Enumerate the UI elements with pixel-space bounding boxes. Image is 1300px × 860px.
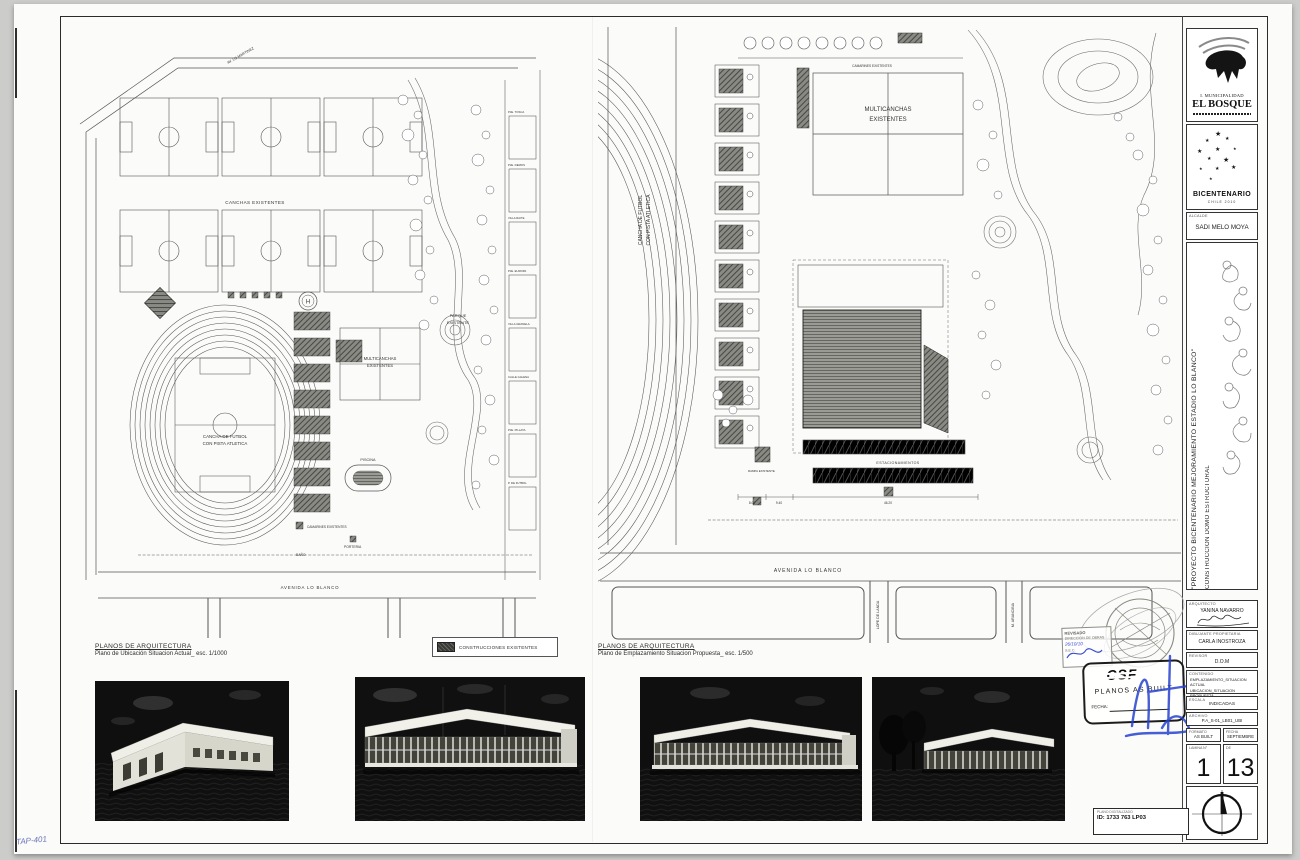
sheet-number: 1: [1187, 754, 1220, 783]
svg-text:PJE. PILLATA: PJE. PILLATA: [508, 428, 526, 432]
caption-sub: Plano de Emplazamiento Situacion Propues…: [598, 651, 753, 659]
multicourts-label: MULTICANCHAS: [865, 107, 912, 113]
multicourts-label: MULTICANCHAS: [364, 356, 397, 361]
cross-street-label: LOPE DE LANDA: [876, 600, 880, 629]
north-arrow-box: [1186, 786, 1258, 840]
municipality-name-line2: EL BOSQUE: [1187, 99, 1257, 110]
helipad: H: [299, 292, 317, 310]
star-icon: ★: [1223, 157, 1229, 164]
svg-text:PJE. TOSCA: PJE. TOSCA: [508, 110, 524, 114]
total-sheets-number: 13: [1224, 754, 1257, 783]
architect-signature: [1195, 611, 1251, 627]
blue-initial-scribble: [1064, 644, 1104, 666]
project-title-line1: "PROYECTO BICENTENARIO MEJORAMIENTO ESTA…: [1191, 267, 1198, 589]
field-lamina-number: LAMINA N° 1: [1186, 744, 1221, 784]
fecha-label: FECHA:: [1091, 704, 1108, 710]
site-plan-current: AV. LO MARTINEZ CANCHAS EXISTENTES CANCH…: [78, 40, 543, 640]
pool-label: PISCINA: [360, 458, 376, 462]
field-archivo: ARCHIVO P.A_S-01_LB01_UBI: [1186, 712, 1258, 726]
mayor-label: ALCALDE: [1189, 214, 1208, 218]
north-arrow-icon: [1190, 788, 1254, 838]
render-image-2: [355, 677, 585, 821]
housing-column: [715, 65, 759, 448]
svg-text:VILLA GRANELA: VILLA GRANELA: [508, 322, 530, 326]
paper-edge-mark: [15, 28, 17, 98]
dimension-line: [738, 494, 978, 500]
svg-text:9.40: 9.40: [776, 501, 782, 505]
svg-text:EXISTENTES: EXISTENTES: [869, 117, 906, 123]
star-icon: ★: [1209, 177, 1213, 181]
digitized-id-box: PLANO DIGITALIZADO ID: 1733 763 LP03: [1093, 808, 1189, 835]
star-icon: ★: [1205, 139, 1209, 144]
track-arcs: [598, 50, 698, 590]
ramp-block: [755, 447, 770, 462]
hatched-strip: [797, 68, 809, 128]
caption-title: PLANOS DE ARQUITECTURA: [95, 643, 227, 651]
svg-text:PJE. EUROPA: PJE. EUROPA: [508, 269, 526, 273]
field-arquitecto: ARQUITECTO YANINA NAVARRO: [1186, 600, 1258, 628]
figures-sketch: [1217, 251, 1257, 481]
logo-bar: [1193, 113, 1251, 115]
svg-text:EXISTENTES: EXISTENTES: [367, 363, 393, 368]
athletic-track: [130, 305, 320, 545]
canchas-label: CANCHAS EXISTENTES: [225, 200, 285, 205]
svg-text:46.20: 46.20: [884, 501, 892, 505]
star-icon: ★: [1199, 167, 1203, 171]
park-paths: [408, 78, 481, 510]
soccer-fields-grid: [120, 98, 422, 292]
cancha-label: CANCHA DE FUTBOL: [203, 434, 248, 439]
mayor-box: ALCALDE SADI MELO MOYA: [1186, 212, 1258, 240]
svg-text:VILLA RAITE: VILLA RAITE: [508, 216, 525, 220]
gate-label: PORTERIA: [344, 545, 362, 549]
svg-text:CANCHA DE FUTBOL: CANCHA DE FUTBOL: [638, 195, 644, 246]
svg-text:EXISTENTE: EXISTENTE: [447, 320, 470, 325]
svg-text:CON PISTA ATLETICA: CON PISTA ATLETICA: [203, 441, 248, 446]
render-image-4: [872, 677, 1065, 821]
id-label: PLANO DIGITALIZADO: [1097, 810, 1185, 814]
project-title-box: "PROYECTO BICENTENARIO MEJORAMIENTO ESTA…: [1186, 242, 1258, 590]
star-icon: ★: [1197, 149, 1202, 155]
municipality-name-line1: I. MUNICIPALIDAD: [1187, 93, 1257, 98]
field-dibujante: DIBUJANTE PROPIETARIA CARLA INOSTROZA: [1186, 630, 1258, 650]
star-icon: ★: [1207, 157, 1211, 162]
avenue-label: AVENIDA LO BLANCO: [774, 568, 842, 574]
render-image-3: [640, 677, 862, 821]
project-title-line2: CONSTRUCCION DOMO ESTRUCTURAL: [1205, 385, 1211, 589]
lockers-label: CAMARINES EXISTENTES: [852, 64, 892, 68]
star-icon: ★: [1231, 165, 1236, 171]
park-paths: [968, 30, 1156, 480]
svg-text:P. DE FUTBOL: P. DE FUTBOL: [508, 481, 527, 485]
id-value: ID: 1733 763 LP03: [1097, 815, 1185, 821]
legend-existing-constructions: CONSTRUCCIONES EXISTENTES: [432, 637, 558, 657]
caption-left: PLANOS DE ARQUITECTURA Plano de Ubicació…: [95, 643, 227, 659]
existing-buildings: [228, 292, 362, 512]
architectural-sheet: { "sheet": { "handwriting": "TAP-401" },…: [0, 0, 1300, 860]
field-revisor: REVISOR D.O.M: [1186, 652, 1258, 668]
locker-building: [296, 522, 303, 529]
municipality-logo-icon: [1191, 31, 1255, 93]
star-icon: ★: [1215, 147, 1220, 153]
site-plan-proposed: CANCHA DE FUTBOL CON PISTA ATLETICA CAMA…: [598, 25, 1183, 643]
south-edge: [98, 555, 536, 638]
paper-edge-mark: [15, 690, 17, 852]
svg-text:8.00: 8.00: [749, 501, 755, 505]
star-icon: ★: [1215, 131, 1221, 138]
svg-text:CALLE GALENA: CALLE GALENA: [508, 375, 529, 379]
west-street: [608, 27, 676, 545]
svg-text:CON PISTA ATLETICA: CON PISTA ATLETICA: [646, 194, 652, 246]
caption-title: PLANOS DE ARQUITECTURA: [598, 643, 753, 651]
bath-label: BAÑO: [296, 552, 306, 557]
cross-street-label: M. ARANCIBIA: [1011, 602, 1015, 627]
field-total-sheets: DE 13: [1223, 744, 1258, 784]
parking: [803, 440, 973, 496]
field-contenido: CONTENIDO EMPLAZAMIENTO_SITUACION ACTUAL…: [1186, 670, 1258, 694]
field-fecha: FECHA SEPTIEMBRE: [1223, 728, 1258, 742]
svg-text:H: H: [306, 300, 310, 306]
bicentenario-title: BICENTENARIO: [1187, 191, 1257, 198]
park-label: PARQUE: [450, 313, 467, 318]
star-icon: ★: [1215, 167, 1219, 172]
dome-building: [793, 260, 948, 453]
caption-right: PLANOS DE ARQUITECTURA Plano de Emplazam…: [598, 643, 753, 659]
municipality-logo-box: I. MUNICIPALIDAD EL BOSQUE: [1186, 28, 1258, 122]
bicentenario-box: ★ ★ ★ ★ ★ ★ ★ ★ ★ ★ ★ ★ BICENTENARIO CHI…: [1186, 124, 1258, 210]
mayor-name: SADI MELO MOYA: [1187, 224, 1257, 231]
field-formato: FORMATO AS BUILT: [1186, 728, 1221, 742]
passage-labels: PJE. TOSCA PJE. DEMOS VILLA RAITE PJE. E…: [508, 110, 530, 485]
street-label: AV. LO MARTINEZ: [227, 46, 256, 65]
avenue-label: AVENIDA LO BLANCO: [281, 585, 340, 590]
fold-line: [592, 16, 593, 842]
legend-swatch: [437, 642, 455, 652]
render-image-1: [95, 681, 289, 821]
multicourts: [813, 73, 963, 195]
gatehouse: [350, 536, 356, 542]
locker-label: CAMARINES EXISTENTES: [307, 525, 347, 529]
svg-text:PJE. DEMOS: PJE. DEMOS: [508, 163, 525, 167]
ramp-label: RAMPA EXISTENTE: [748, 469, 775, 473]
star-icon: ★: [1233, 147, 1237, 151]
parking-label: ESTACIONAMIENTOS: [876, 461, 919, 465]
bicentenario-sub: CHILE 2010: [1187, 200, 1257, 204]
star-icon: ★: [1225, 137, 1229, 142]
field-escala: ESCALA INDICADAS: [1186, 696, 1258, 710]
top-trees: [744, 37, 882, 49]
caption-sub: Plano de Ubicación Situacion Actual_ esc…: [95, 651, 227, 659]
